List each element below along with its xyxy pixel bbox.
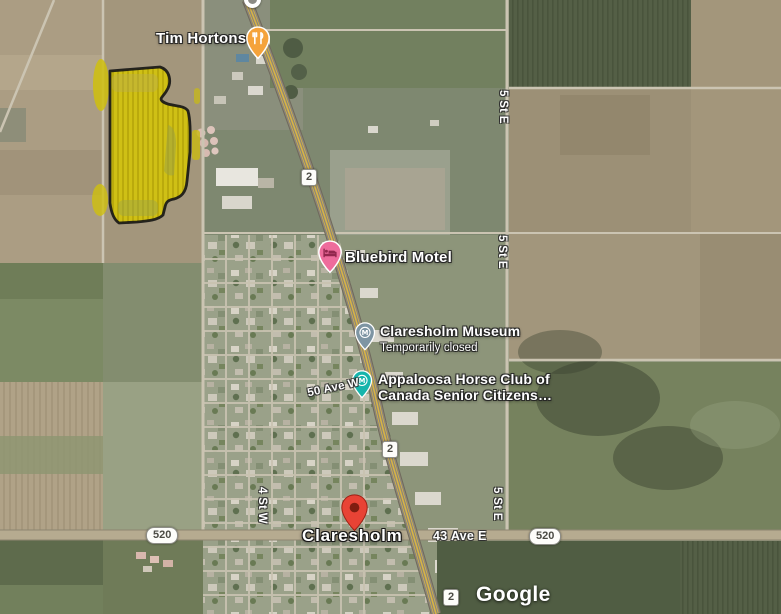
poi-label-appaloosa-horse-club[interactable]: Appaloosa Horse Club of Canada Senior Ci…: [378, 372, 552, 403]
museum-pin-icon[interactable]: M: [354, 322, 376, 351]
route-shield-2: 2: [382, 441, 398, 458]
road-label-43-ave-e: 43 Ave E: [433, 529, 487, 543]
satellite-imagery: [0, 0, 781, 614]
road-label-5-st-e: 5 St E: [497, 90, 509, 124]
poi-status-temporarily-closed: Temporarily closed: [380, 341, 478, 356]
poi-label-claresholm-museum[interactable]: Claresholm Museum: [380, 324, 520, 339]
route-shield-520: 520: [529, 528, 561, 545]
poi-label-tim-hortons[interactable]: Tim Hortons: [156, 31, 246, 46]
place-label-claresholm[interactable]: Claresholm: [302, 526, 398, 546]
restaurant-pin-icon[interactable]: [245, 26, 271, 60]
google-logo[interactable]: Google: [476, 583, 551, 607]
poi-label-bluebird-motel[interactable]: Bluebird Motel: [345, 250, 452, 265]
road-label-5-st-e: 5 St E: [491, 487, 503, 521]
road-label-5-st-e: 5 St E: [496, 235, 508, 269]
satellite-map[interactable]: Tim Hortons Bluebird Motel M Claresholm …: [0, 0, 781, 614]
route-shield-2: 2: [301, 169, 317, 186]
road-label-4-st-w: 4 St W: [256, 487, 268, 524]
route-shield-2: 2: [443, 589, 459, 606]
lodging-pin-icon[interactable]: [317, 240, 343, 274]
svg-text:M: M: [362, 329, 369, 337]
route-shield-520: 520: [146, 527, 178, 544]
